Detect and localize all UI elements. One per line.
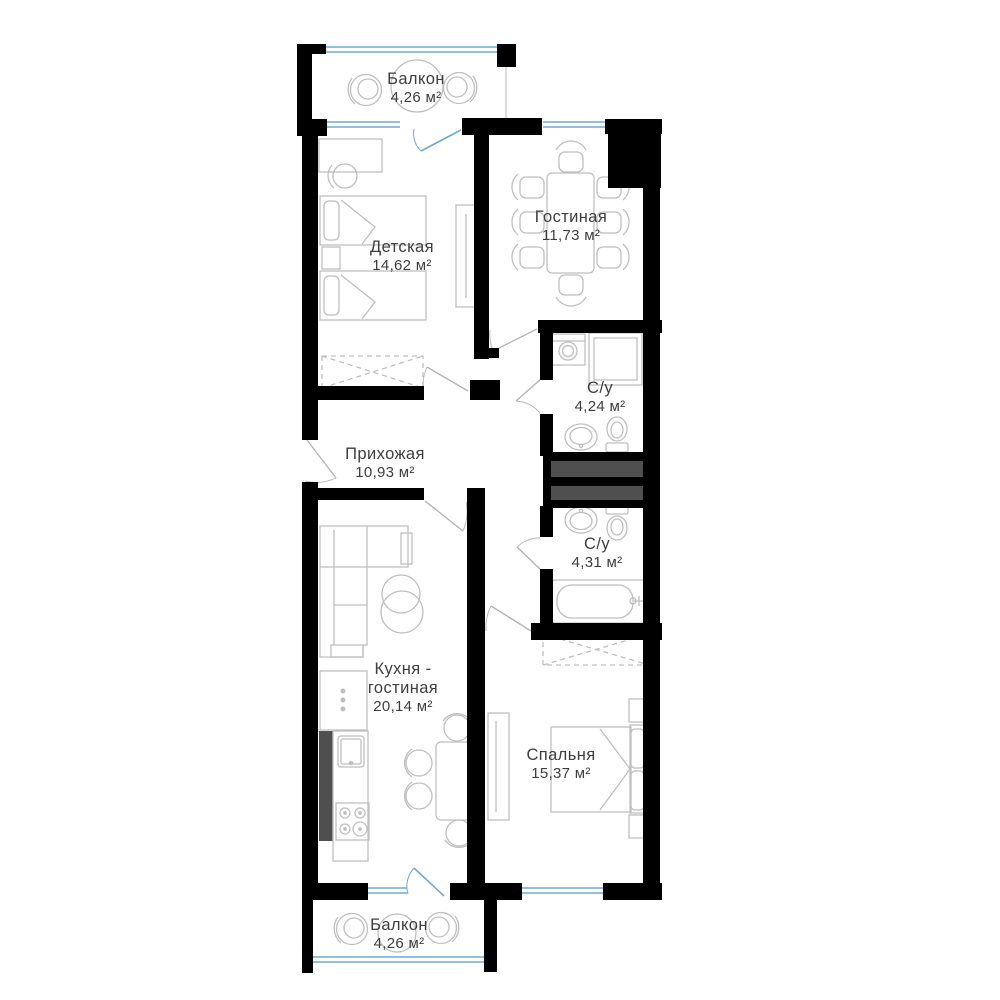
chair	[405, 782, 432, 810]
chair	[443, 714, 471, 741]
chair	[556, 141, 586, 172]
room-area: 4,31 м²	[572, 554, 623, 571]
sink	[565, 424, 597, 450]
room-label-bedroom: Спальня 15,37 м²	[526, 746, 595, 783]
nightstand	[322, 247, 340, 269]
room-name: С/у	[575, 379, 626, 398]
wardrobe	[488, 713, 509, 820]
room-area: 11,73 м²	[535, 227, 607, 244]
door-bath-2	[517, 538, 541, 570]
chair	[597, 244, 629, 270]
floor-plan-drawing	[0, 0, 1000, 1000]
door-bath-1	[516, 379, 541, 413]
walls	[297, 44, 662, 973]
room-name: Детская	[370, 238, 434, 257]
kitchen-cabinet	[320, 671, 367, 730]
single-bed	[320, 271, 426, 320]
balcony-armchair	[334, 914, 367, 945]
door-children	[423, 367, 468, 391]
ventilation-shaft	[551, 461, 643, 477]
room-label-hallway: Прихожая 10,93 м²	[345, 445, 425, 482]
window-kitchen	[368, 888, 407, 893]
room-label-children: Детская 14,62 м²	[370, 238, 434, 275]
chair	[512, 244, 544, 270]
window-bedroom	[522, 888, 603, 893]
toilet	[606, 417, 628, 452]
door-kitchen	[425, 501, 467, 531]
balcony-door-top	[414, 129, 461, 151]
room-label-balcony-bottom: Балкон 4,26 м²	[370, 916, 428, 953]
floor-plan: Балкон 4,26 м² Детская 14,62 м² Гостиная…	[0, 0, 1000, 1000]
balcony-armchair	[444, 73, 477, 104]
washing-machine	[552, 334, 585, 365]
desk-chair	[328, 164, 357, 188]
room-label-living: Гостиная 11,73 м²	[535, 208, 607, 245]
room-area: 20,14 м²	[368, 698, 438, 715]
balcony-armchair	[348, 75, 381, 106]
room-area: 14,62 м²	[370, 257, 434, 274]
door-living	[490, 329, 537, 351]
stove	[336, 803, 369, 840]
wardrobe	[456, 205, 477, 307]
room-name: Спальня	[526, 746, 595, 765]
balcony-door-bottom	[407, 868, 444, 896]
window-children	[327, 122, 400, 127]
coffee-table	[381, 575, 423, 633]
door-bedroom	[486, 606, 531, 631]
tall-cabinet	[319, 731, 333, 841]
chair	[512, 174, 544, 200]
room-name: Гостиная	[535, 208, 607, 227]
room-name: Кухня -	[368, 660, 438, 679]
room-label-bath-1: С/у 4,24 м²	[575, 379, 626, 416]
room-name: С/у	[572, 535, 623, 554]
chair	[556, 275, 586, 306]
room-area: 15,37 м²	[526, 765, 595, 782]
chair	[405, 749, 432, 777]
room-name: гостиная	[368, 679, 438, 698]
kitchen-sink	[338, 736, 364, 767]
room-name: Балкон	[370, 916, 428, 935]
window-living	[543, 122, 605, 127]
room-area: 10,93 м²	[345, 464, 425, 481]
bathtub	[551, 580, 647, 623]
window-balcony-top	[313, 47, 497, 52]
window-balcony-bottom	[313, 957, 484, 962]
shower-cabin	[589, 333, 642, 385]
room-label-balcony-top: Балкон 4,26 м²	[387, 70, 445, 107]
room-name: Балкон	[387, 70, 445, 89]
room-label-kitchen-living: Кухня - гостиная 20,14 м²	[368, 660, 438, 716]
room-area: 4,26 м²	[387, 89, 445, 106]
room-area: 4,24 м²	[575, 398, 626, 415]
ventilation-shaft	[551, 486, 643, 500]
room-area: 4,26 м²	[370, 935, 428, 952]
desk	[319, 139, 382, 172]
balcony-armchair	[426, 913, 459, 944]
room-label-bath-2: С/у 4,31 м²	[572, 535, 623, 572]
sink	[565, 507, 597, 533]
wardrobe-dashed	[322, 356, 423, 388]
door-entrance	[305, 440, 336, 482]
room-name: Прихожая	[345, 445, 425, 464]
